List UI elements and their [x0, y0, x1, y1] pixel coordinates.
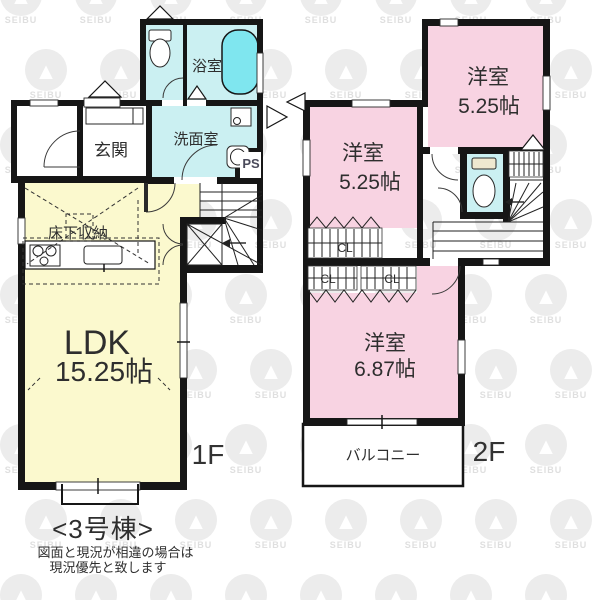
building-title: <3号棟>	[28, 509, 178, 546]
balcony-label: バルコニー	[346, 447, 421, 464]
shoe-cabinet	[86, 108, 143, 124]
entrance-door-triangle	[89, 81, 121, 97]
floor2-plan: 洋室 5.25帖 洋室 5.25帖 洋室 6.87帖 CL CL CL バルコニ…	[287, 19, 550, 486]
stair-direction-arrow-1f	[222, 239, 246, 247]
bedroom-b	[310, 107, 417, 228]
ps-label: PS	[242, 156, 260, 171]
toilet-1f	[149, 30, 171, 67]
washroom-label: 洗面室	[173, 131, 218, 148]
underfloor-label: 床下収納	[48, 225, 108, 242]
ldk-size-label: 15.25帖	[55, 356, 153, 387]
toilet-2f	[472, 158, 496, 207]
bedroom-b-label: 洋室	[342, 142, 384, 165]
floor1-plan: 玄関 浴室 洗面室 PS 床下収納 LDK 15.25帖 1F	[11, 6, 287, 504]
side-marker-right-1f	[267, 106, 287, 128]
bedroom-c-label: 洋室	[364, 332, 406, 355]
vent-triangle-toilet-1f	[147, 6, 173, 19]
entrance-side-room	[17, 106, 77, 176]
bedroom-a-label: 洋室	[467, 66, 509, 89]
floor2-label: 2F	[473, 436, 506, 467]
closet-a-label: CL	[337, 241, 353, 255]
closet-c-label: CL	[384, 272, 400, 286]
floor1-label: 1F	[192, 439, 225, 470]
floorplan-image: ▲SEIBU▲SEIBU▲SEIBU▲SEIBU▲SEIBU▲SEIBU▲SEI…	[0, 0, 600, 600]
bedroom-b-size: 5.25帖	[339, 171, 401, 194]
bedroom-c-size: 6.87帖	[354, 358, 416, 381]
entrance-label: 玄関	[94, 141, 128, 160]
entrance-door	[84, 98, 120, 107]
bath-label: 浴室	[192, 58, 222, 75]
closet-hall-2f	[509, 151, 543, 177]
side-marker-left-2f	[287, 93, 305, 111]
bedroom-a-size: 5.25帖	[458, 95, 520, 118]
bathtub	[222, 30, 258, 94]
disclaimer-line2: 現況優先と致します	[18, 557, 198, 576]
washer-pan	[231, 108, 251, 126]
closet-b-label: CL	[320, 272, 336, 286]
